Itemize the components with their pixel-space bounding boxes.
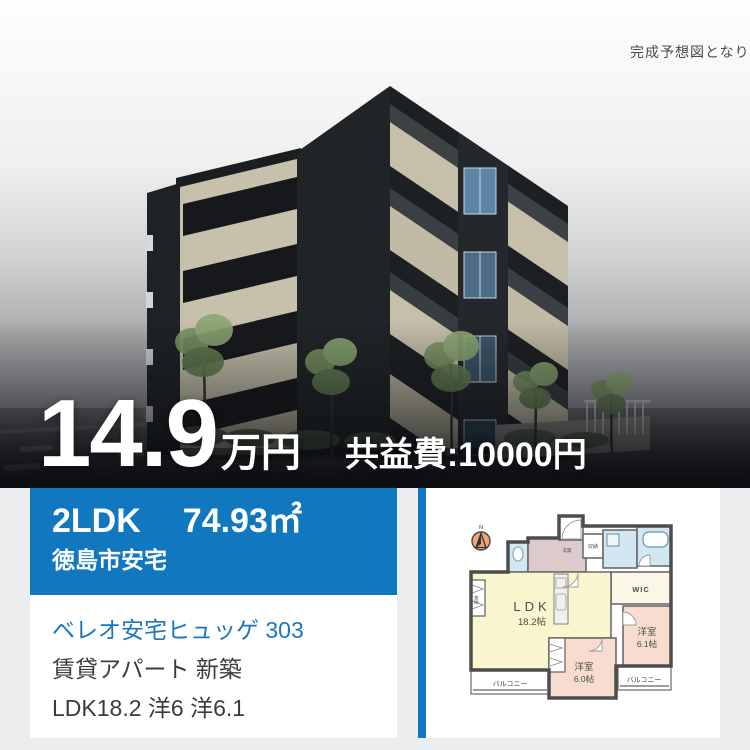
bedroom1-size-label: 6.1帖: [637, 639, 658, 649]
property-name-link[interactable]: ベレオ安宅ヒュッゲ 303: [52, 617, 304, 643]
compass-n-label: N: [479, 525, 483, 531]
bedroom2-label: 洋室: [574, 661, 593, 673]
building-photo: 完成予想図となり 14.9 万円 共益費:10000円: [0, 0, 750, 488]
price-amount: 14.9: [38, 386, 217, 482]
floorplan-card[interactable]: N: [418, 488, 720, 738]
listing-details: ベレオ安宅ヒュッゲ 303 賃貸アパート 新築 LDK18.2 洋6 洋6.1: [30, 595, 397, 728]
area-label: 74.93㎡: [183, 502, 302, 540]
price-unit: 万円: [221, 420, 301, 478]
entrance-label: 玄関: [563, 547, 572, 554]
common-fee: 共益費:10000円: [345, 427, 587, 476]
closet-entrance-label: 収納: [588, 543, 598, 550]
ldk-label: LDK: [513, 599, 550, 614]
ldk-size-label: 18.2帖: [518, 616, 546, 628]
layout-area-line: 2LDK74.93㎡: [52, 498, 397, 544]
listing-page: 完成予想図となり 14.9 万円 共益費:10000円 2LDK74.93㎡ 徳…: [0, 0, 750, 750]
wic-label: WIC: [632, 585, 650, 594]
info-section: 2LDK74.93㎡ 徳島市安宅 ベレオ安宅ヒュッゲ 303 賃貸アパート 新築…: [0, 488, 750, 750]
balcony-left-label: バルコニー: [493, 680, 528, 688]
closet-ldk-label: 収納: [473, 595, 480, 604]
bedroom2-size-label: 6.0帖: [574, 674, 595, 684]
property-category: 賃貸アパート 新築: [52, 650, 397, 689]
property-rooms: LDK18.2 洋6 洋6.1: [52, 689, 397, 728]
floorplan-image: N: [426, 488, 720, 738]
bedroom1-label: 洋室: [637, 626, 656, 638]
price-overlay: 14.9 万円 共益費:10000円: [38, 386, 587, 482]
room-hall: [528, 538, 586, 572]
summary-header: 2LDK74.93㎡ 徳島市安宅: [30, 488, 397, 595]
layout-label: 2LDK: [52, 502, 141, 540]
listing-summary-card[interactable]: 2LDK74.93㎡ 徳島市安宅 ベレオ安宅ヒュッゲ 303 賃貸アパート 新築…: [30, 488, 397, 738]
photo-caption: 完成予想図となり: [630, 42, 750, 62]
balcony-right-label: バルコニー: [627, 676, 662, 684]
location-label: 徳島市安宅: [52, 544, 397, 576]
